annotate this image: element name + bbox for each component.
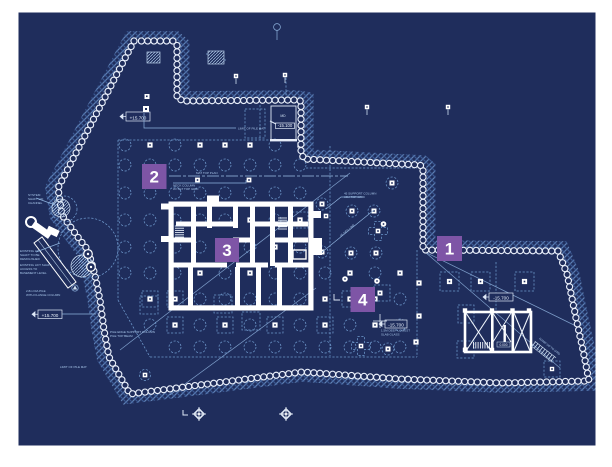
- svg-text:1: 1: [445, 240, 454, 259]
- svg-text:MD: MD: [280, 114, 286, 118]
- svg-text:-15.700: -15.700: [388, 322, 404, 327]
- svg-text:4: 4: [358, 291, 368, 310]
- svg-text:LIMIT OF PILE MAT: LIMIT OF PILE MAT: [238, 127, 265, 131]
- svg-text:CHANNEL: CHANNEL: [28, 201, 43, 205]
- svg-text:DEMOLISHED: DEMOLISHED: [20, 257, 41, 261]
- svg-text:0.000: 0.000: [500, 343, 508, 347]
- svg-text:3: 3: [222, 241, 231, 260]
- svg-text:ADJ TOP GRID: ADJ TOP GRID: [344, 195, 366, 199]
- svg-text:-15.700: -15.700: [493, 295, 509, 300]
- svg-text:2: 2: [150, 168, 159, 187]
- svg-text:MAT TOP PLAN: MAT TOP PLAN: [196, 171, 218, 175]
- svg-text:BASEMENT LEVEL: BASEMENT LEVEL: [20, 271, 47, 275]
- svg-text:PILE TOP BEAM: PILE TOP BEAM: [110, 334, 133, 338]
- svg-text:WITH FLANGE COLUMN: WITH FLANGE COLUMN: [26, 293, 60, 297]
- svg-text:LIMIT OF PILE MAT: LIMIT OF PILE MAT: [60, 365, 87, 369]
- svg-text:-15.100: -15.100: [278, 123, 293, 128]
- svg-text:SLAB GLASS: SLAB GLASS: [381, 333, 400, 337]
- svg-text:W/ SET TOP GRID: W/ SET TOP GRID: [173, 187, 199, 191]
- svg-text:+15.700: +15.700: [42, 313, 59, 318]
